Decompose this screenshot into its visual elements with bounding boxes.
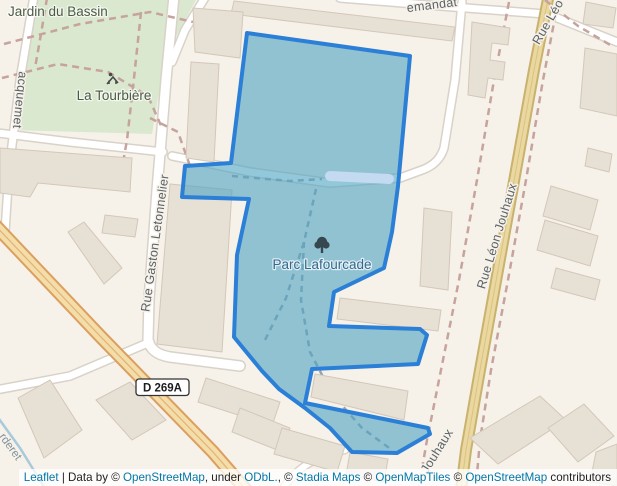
- attribution-text: | Data by ©: [59, 471, 123, 484]
- leaflet-link[interactable]: Leaflet: [24, 471, 59, 484]
- building: [157, 184, 232, 352]
- openstreetmap-link[interactable]: OpenStreetMap: [465, 471, 547, 484]
- building: [193, 8, 243, 58]
- water-band: [330, 176, 389, 179]
- attribution-bar: Leaflet | Data by © OpenStreetMap, under…: [19, 469, 617, 486]
- attribution-text: ©: [360, 471, 375, 484]
- building: [580, 48, 617, 116]
- road-ref-badge: D 269A: [136, 379, 189, 396]
- odbl-link[interactable]: ODbL.: [244, 471, 278, 484]
- building: [420, 208, 452, 290]
- label-jardin-du-bassin: Jardin du Bassin: [8, 4, 108, 19]
- attribution-text: contributors: [547, 471, 611, 484]
- attribution-text: ©: [450, 471, 465, 484]
- stadia-maps-link[interactable]: Stadia Maps: [296, 471, 360, 484]
- openmaptiles-link[interactable]: OpenMapTiles: [375, 471, 450, 484]
- road-ref-text: D 269A: [143, 383, 182, 395]
- map-tiles: Jardin du Bassin La Tourbière Parc Lafou…: [0, 0, 617, 486]
- map-canvas[interactable]: Jardin du Bassin La Tourbière Parc Lafou…: [0, 0, 617, 486]
- openstreetmap-link[interactable]: OpenStreetMap: [123, 471, 205, 484]
- building: [102, 215, 138, 237]
- building: [186, 62, 219, 162]
- attribution-text: , ©: [278, 471, 296, 484]
- label-parc-lafourcade: Parc Lafourcade: [272, 257, 371, 272]
- attribution-text: , under: [205, 471, 244, 484]
- label-la-tourbiere: La Tourbière: [77, 88, 152, 103]
